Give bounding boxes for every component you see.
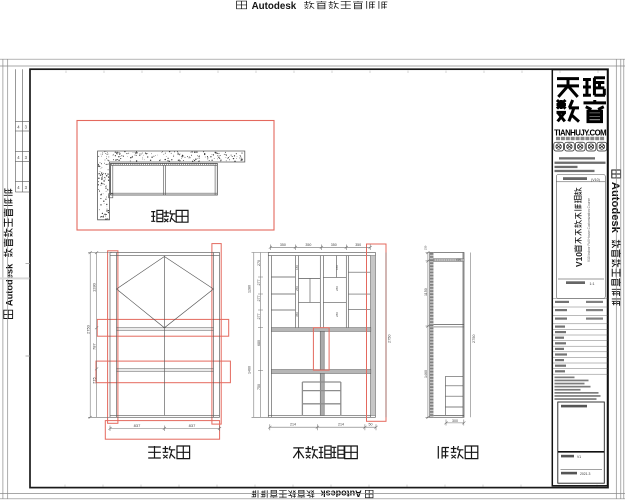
svg-text:600: 600	[457, 257, 462, 261]
svg-text:277: 277	[257, 296, 261, 302]
svg-text:180: 180	[335, 265, 339, 270]
svg-text:787: 787	[92, 343, 97, 350]
svg-text:280: 280	[335, 286, 339, 291]
svg-text:350: 350	[305, 243, 311, 247]
svg-text:250: 250	[295, 286, 299, 291]
svg-text:1150: 1150	[424, 288, 428, 296]
svg-text:V10: V10	[574, 252, 584, 267]
svg-text:4: 4	[17, 185, 20, 190]
svg-text:350: 350	[280, 243, 286, 247]
svg-text:300: 300	[452, 419, 458, 423]
svg-text:4: 4	[17, 155, 20, 160]
svg-text:837: 837	[134, 423, 141, 428]
svg-text:350: 350	[355, 243, 361, 247]
svg-text:1460: 1460	[424, 370, 428, 378]
svg-text:180: 180	[295, 265, 299, 270]
svg-text:Autodesk: Autodesk	[252, 1, 297, 12]
svg-text:680: 680	[257, 340, 261, 346]
svg-text:270: 270	[257, 260, 261, 266]
svg-text:350: 350	[295, 312, 299, 317]
svg-text:2021.3: 2021.3	[580, 472, 590, 476]
svg-text:2750: 2750	[85, 324, 90, 334]
svg-text:1:1: 1:1	[590, 282, 595, 286]
svg-text:Autodesk: Autodesk	[5, 263, 15, 306]
svg-text:277: 277	[257, 314, 261, 320]
svg-text:280: 280	[335, 312, 339, 317]
svg-text:350: 350	[331, 243, 337, 247]
svg-text:1460: 1460	[247, 366, 251, 374]
svg-text:2750: 2750	[388, 335, 392, 343]
svg-text:V1: V1	[577, 455, 581, 459]
svg-text:Autodesk: Autodesk	[609, 182, 621, 234]
svg-text:775: 775	[92, 377, 97, 384]
svg-text:2750: 2750	[472, 335, 476, 343]
svg-text:(V10): (V10)	[591, 178, 600, 182]
svg-text:750: 750	[257, 384, 261, 390]
svg-text:837: 837	[189, 423, 196, 428]
svg-text:214: 214	[338, 423, 344, 427]
svg-text:V10 Indoor Full House Customiz: V10 Indoor Full House Customization Cour…	[587, 198, 591, 262]
svg-text:277: 277	[257, 280, 261, 286]
svg-text:1280: 1280	[92, 282, 97, 292]
svg-text:3: 3	[25, 125, 28, 130]
svg-text:1280: 1280	[247, 285, 251, 293]
svg-text:214: 214	[290, 423, 296, 427]
svg-text:3: 3	[25, 155, 28, 160]
svg-text:TIANHUJY.COM: TIANHUJY.COM	[554, 128, 607, 137]
svg-text:50: 50	[369, 423, 373, 427]
svg-text:3: 3	[25, 185, 28, 190]
svg-text:230: 230	[424, 245, 428, 250]
svg-text:4: 4	[17, 125, 20, 130]
